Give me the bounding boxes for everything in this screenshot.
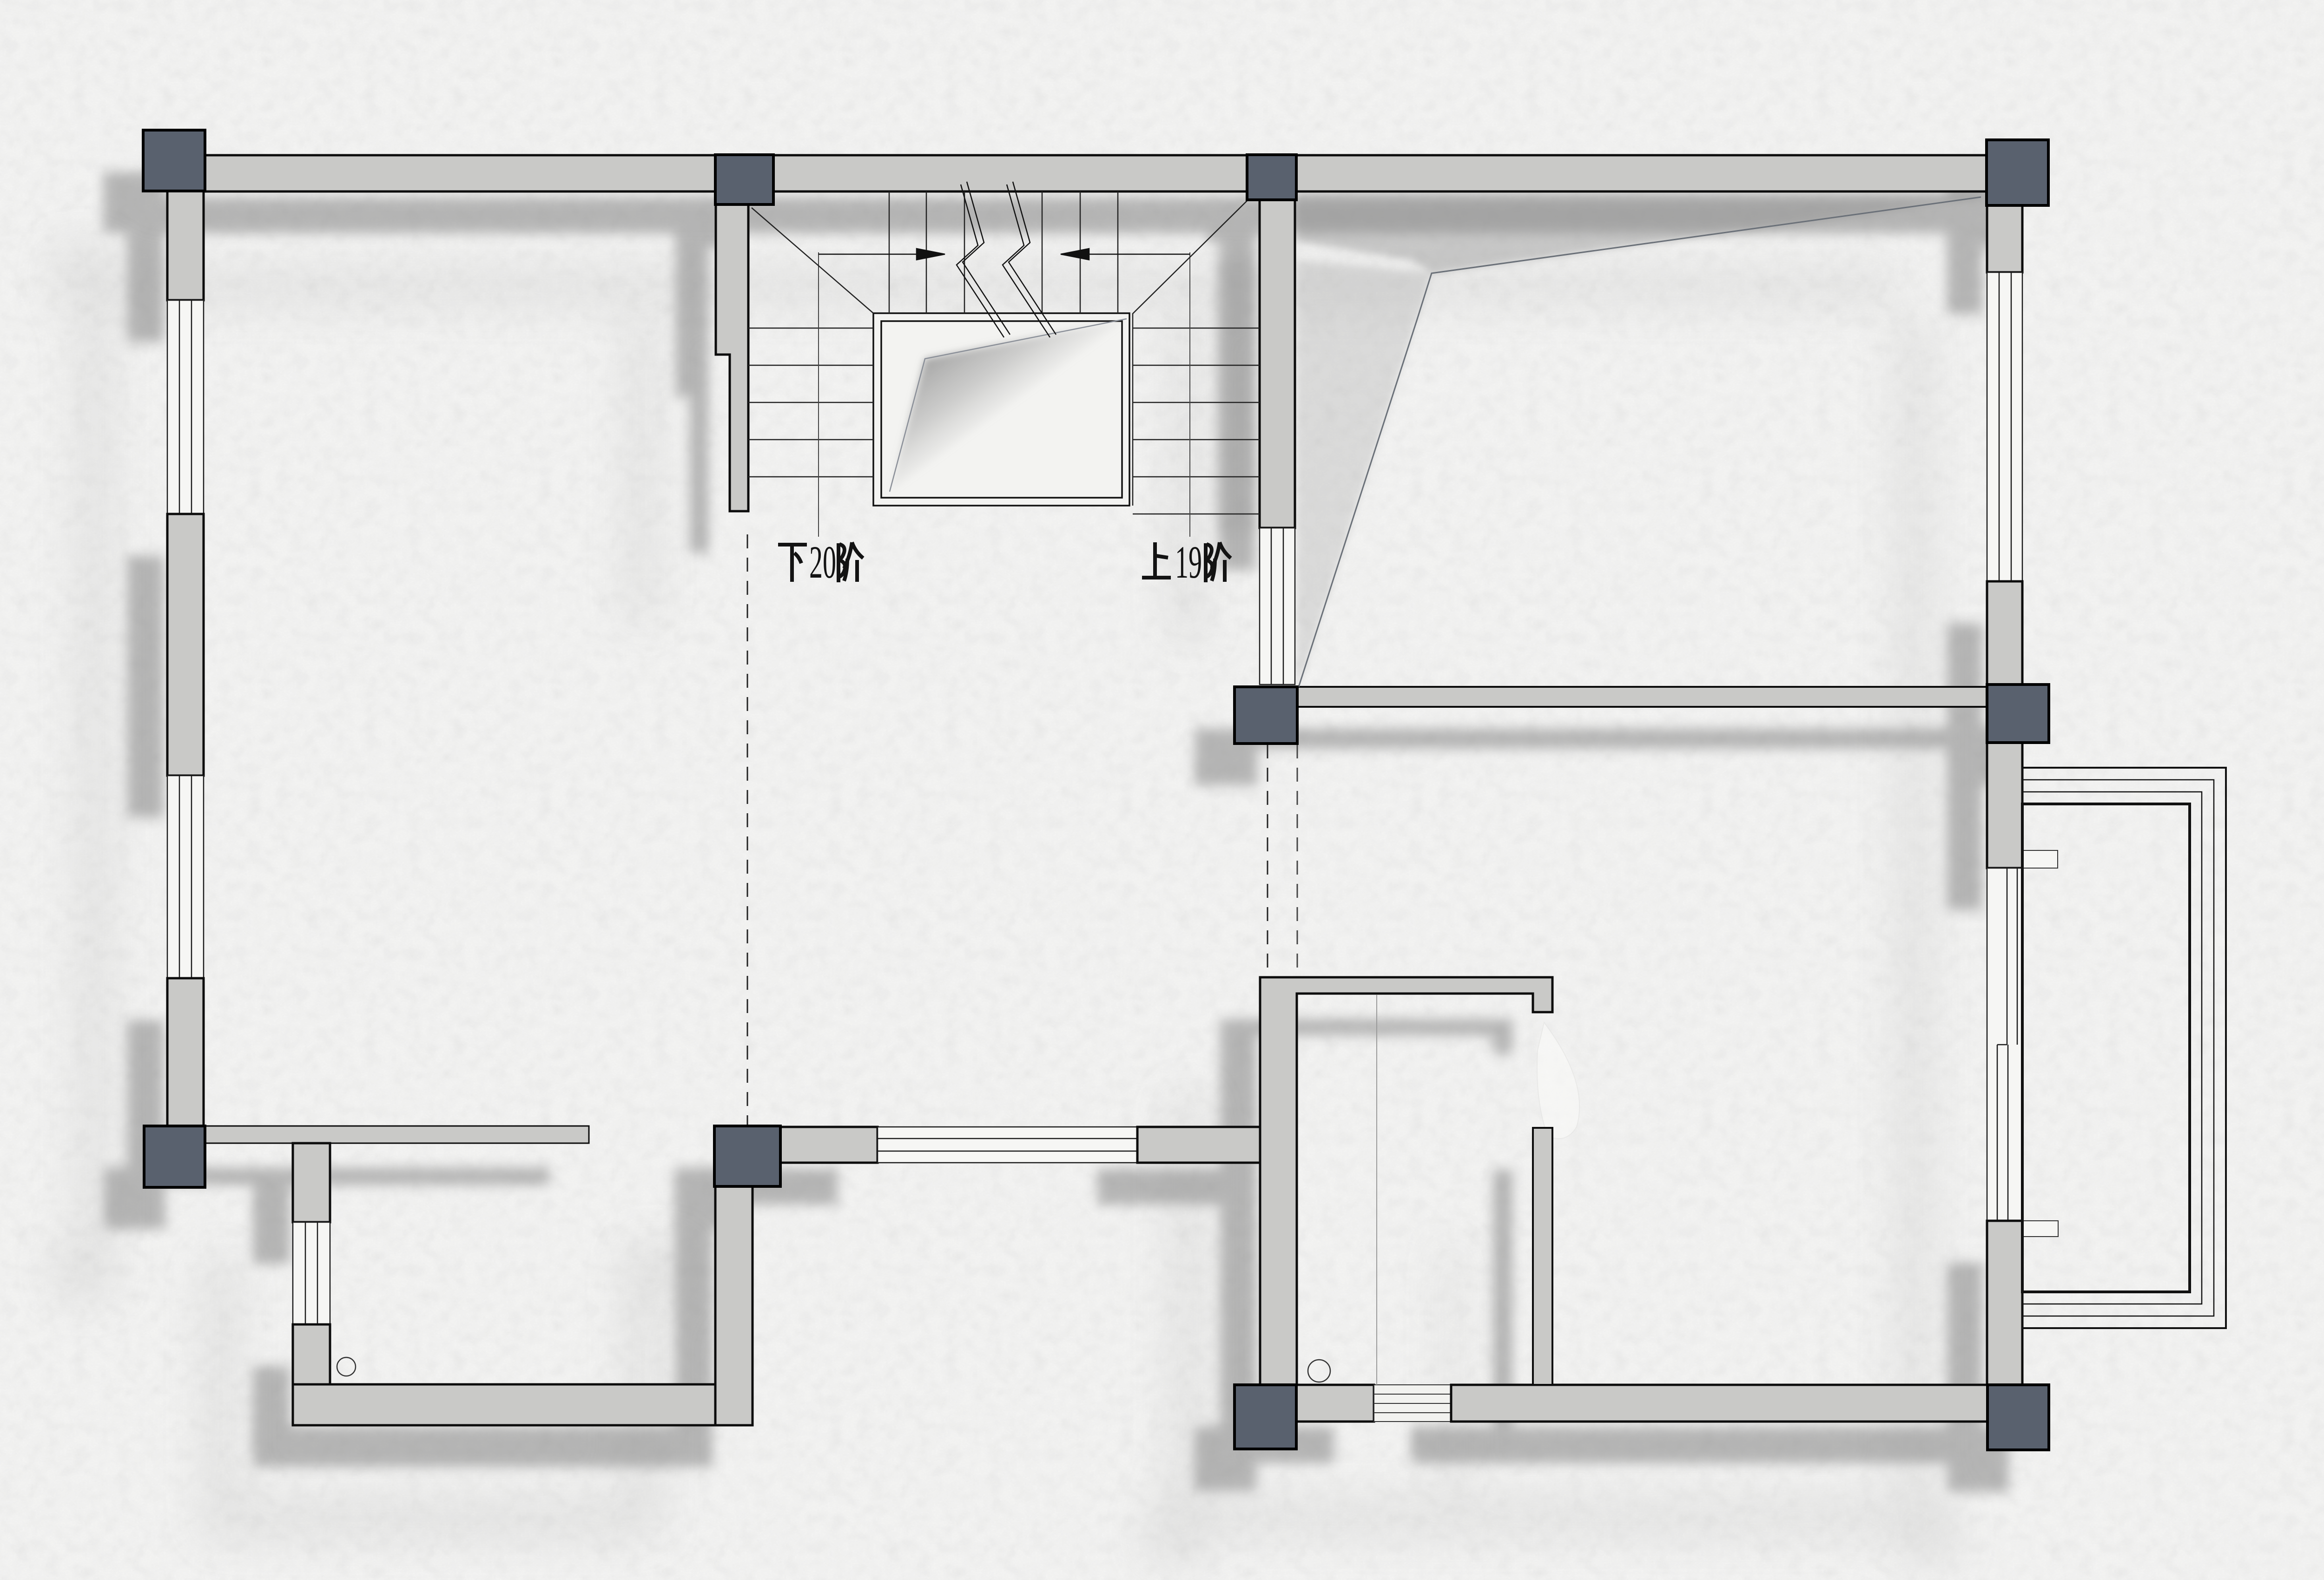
svg-text:20: 20 — [809, 536, 836, 588]
svg-text:19: 19 — [1175, 536, 1202, 588]
